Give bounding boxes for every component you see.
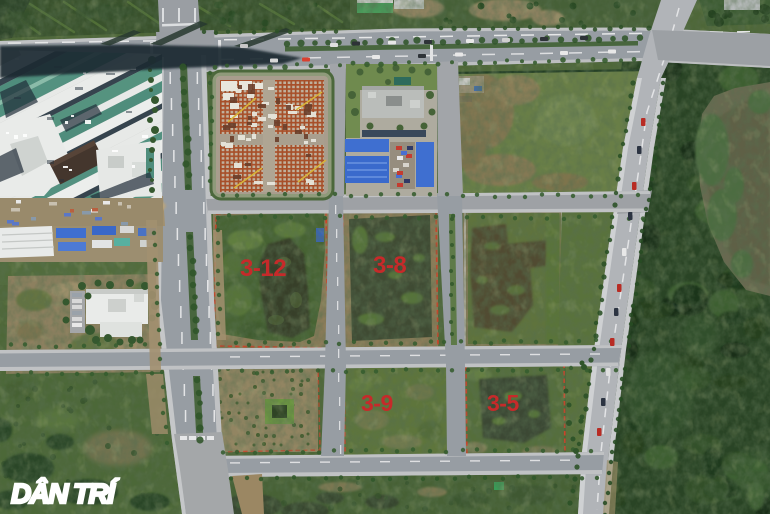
svg-text:3-5: 3-5	[487, 390, 519, 416]
svg-text:3-8: 3-8	[373, 252, 406, 279]
svg-text:3-9: 3-9	[361, 390, 393, 416]
svg-text:3-12: 3-12	[240, 255, 286, 282]
svg-text:DÂN TRÍ: DÂN TRÍ	[11, 478, 119, 509]
